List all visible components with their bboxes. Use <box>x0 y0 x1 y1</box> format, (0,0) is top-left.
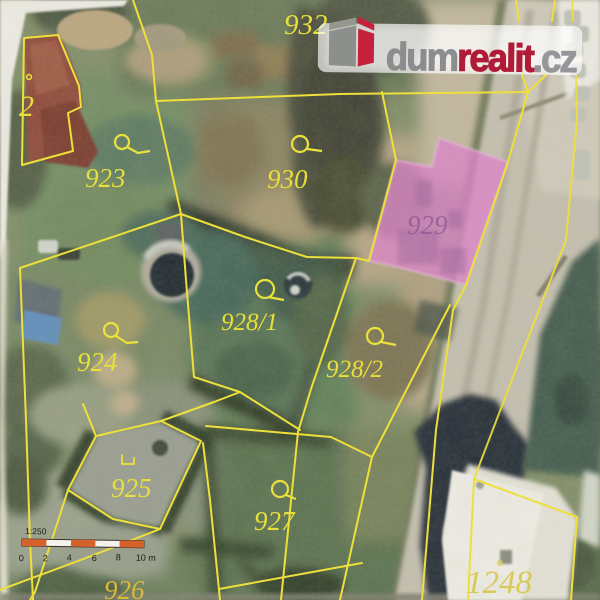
svg-text:6: 6 <box>92 553 97 563</box>
svg-text:0: 0 <box>19 553 24 563</box>
svg-text:4: 4 <box>67 553 72 563</box>
svg-text:923: 923 <box>85 163 126 193</box>
svg-text:924: 924 <box>77 347 118 377</box>
svg-text:927: 927 <box>254 506 296 536</box>
svg-text:928/2: 928/2 <box>326 356 383 383</box>
svg-text:2: 2 <box>43 553 48 563</box>
svg-text:930: 930 <box>267 164 308 194</box>
svg-text:928/1: 928/1 <box>221 309 278 336</box>
svg-text:1:250: 1:250 <box>25 526 47 536</box>
svg-text:8: 8 <box>116 552 121 562</box>
svg-text:2: 2 <box>19 90 34 123</box>
svg-text:926: 926 <box>104 575 145 600</box>
svg-text:1248: 1248 <box>466 565 533 600</box>
svg-text:925: 925 <box>111 473 152 503</box>
svg-text:dumrealit.cz: dumrealit.cz <box>386 36 578 81</box>
svg-text:929: 929 <box>407 210 448 240</box>
svg-text:10 m: 10 m <box>136 553 156 563</box>
